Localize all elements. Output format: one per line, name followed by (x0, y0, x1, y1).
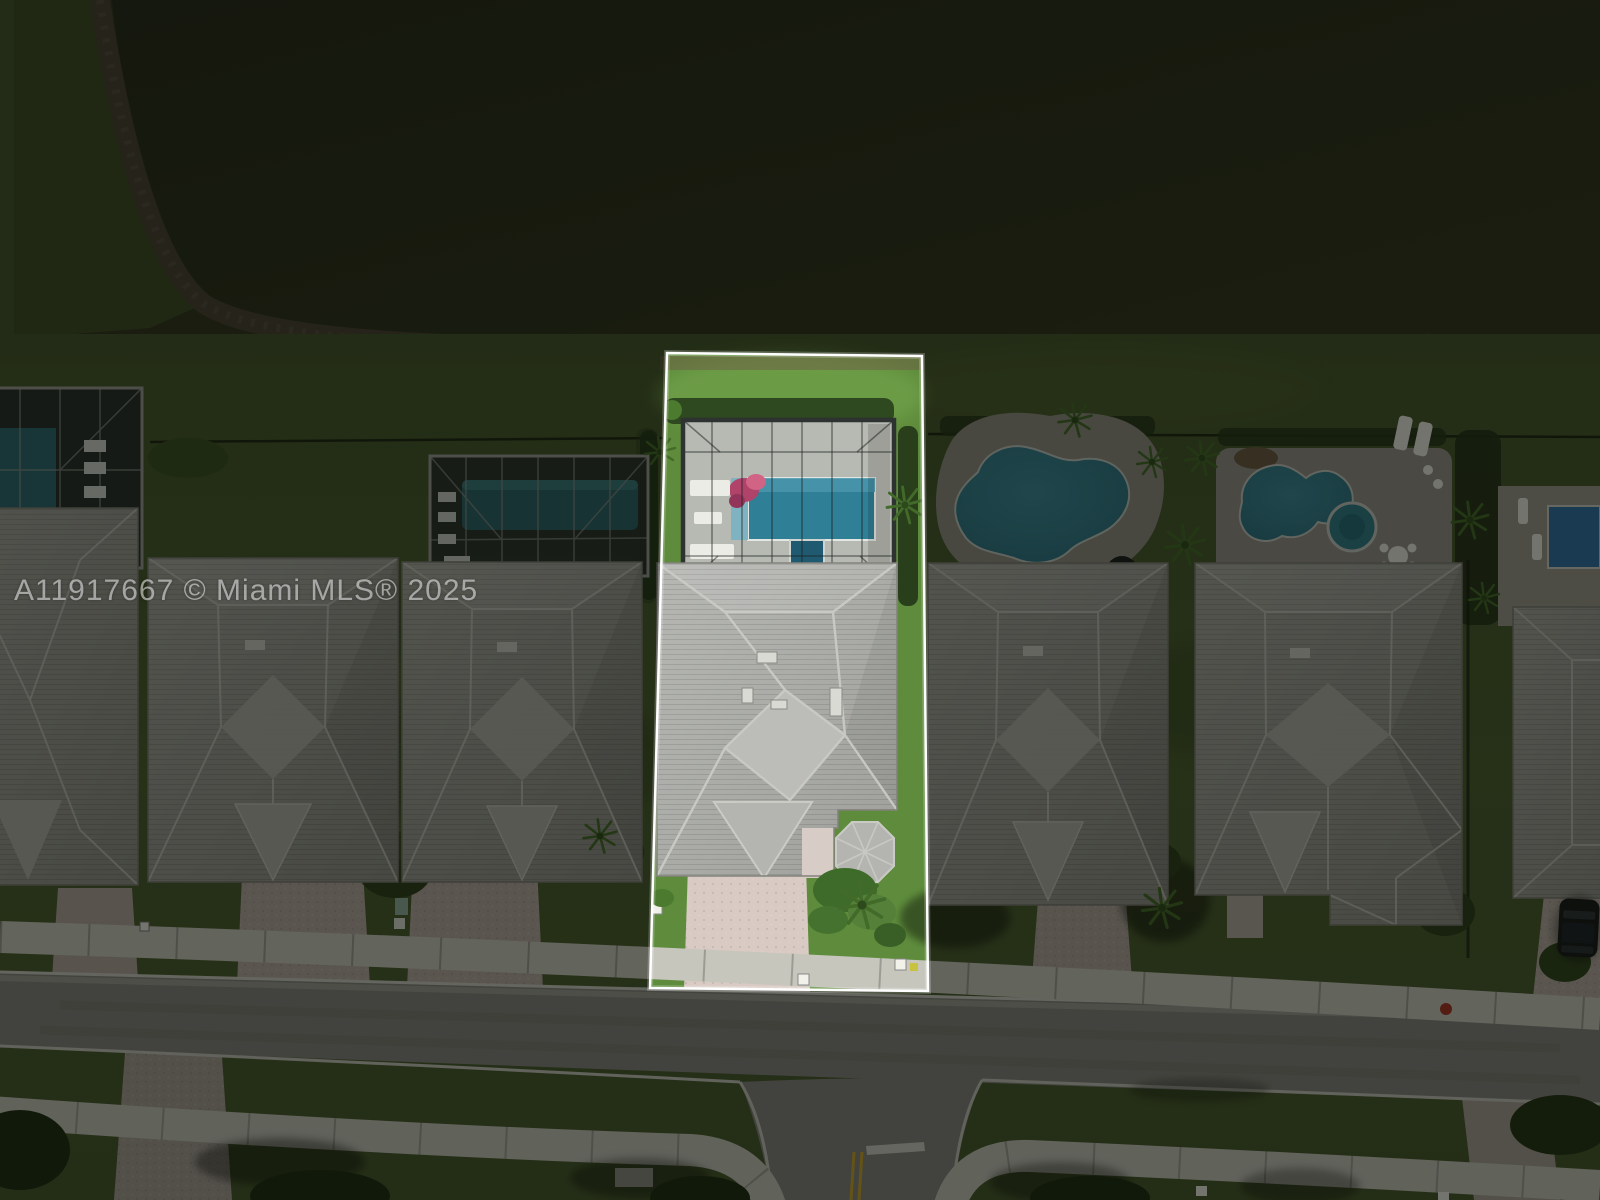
pool-sunshelf-edge (748, 478, 875, 492)
watermark: A11917667 © Miami MLS® 2025 (14, 574, 478, 608)
aerial-listing-photo: A11917667 © Miami MLS® 2025 (0, 0, 1600, 1200)
entry-walk (802, 828, 834, 878)
lanai-shade (868, 424, 890, 584)
